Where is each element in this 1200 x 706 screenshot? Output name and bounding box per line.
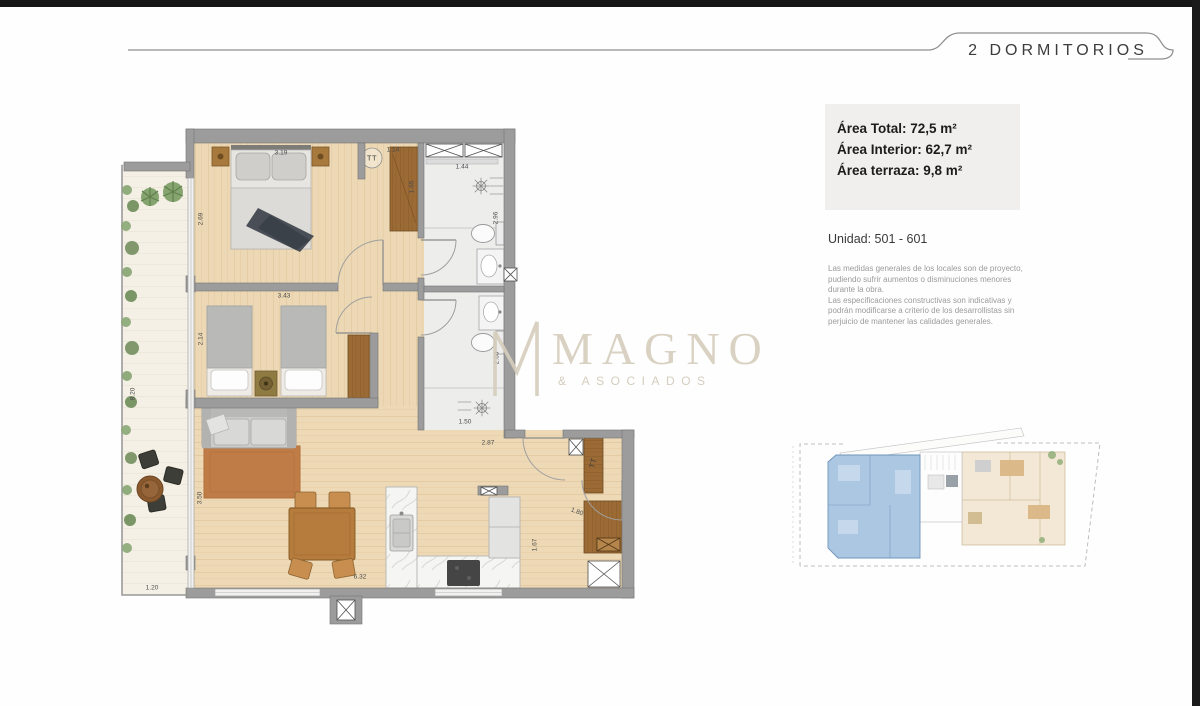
- duct-hatch: [597, 538, 620, 551]
- sink-icon: [390, 512, 413, 552]
- dimension-label: 2.96: [493, 212, 500, 225]
- dimension-label: 3.43: [278, 293, 291, 300]
- single-bed: [207, 306, 252, 396]
- area-interior: Área Interior: 62,7 m²: [837, 139, 1008, 160]
- living-room: [202, 406, 355, 580]
- dimension-label: 6.32: [354, 574, 367, 581]
- dimension-label: 2.69: [198, 213, 205, 226]
- disclaimer: Las medidas generales de los locales son…: [828, 264, 1024, 327]
- toilet-icon: [472, 331, 505, 354]
- page-edge-top: [0, 0, 1200, 7]
- dimension-label: 1.44: [456, 164, 469, 171]
- doors: [336, 240, 622, 520]
- bathroom-1: [424, 159, 504, 284]
- nightstand: [312, 147, 329, 166]
- kitchen: [386, 487, 520, 588]
- terrace-table-set: [137, 450, 183, 513]
- bathroom-2: [424, 296, 504, 416]
- brand-tagline: & ASOCIADOS: [558, 374, 712, 388]
- cooktop-icon: [447, 560, 480, 586]
- plan-label-layer: 3.192.691.141.651.442.963.432.142.601.50…: [0, 0, 1200, 706]
- area-terraza: Área terraza: 9,8 m²: [837, 160, 1008, 181]
- entry-hall: [584, 438, 622, 553]
- kitchen-island: [386, 487, 417, 588]
- dimension-label: 1.14: [387, 147, 400, 154]
- entry-closet: [584, 501, 622, 553]
- brand-name: MAGNO: [552, 322, 771, 375]
- dimension-label: 2.87: [482, 440, 495, 447]
- floor-plan-graphic: [0, 0, 1200, 706]
- vanity-sink-icon: [479, 296, 504, 330]
- disclaimer-paragraph-2: Las especificaciones constructivas son i…: [828, 296, 1024, 328]
- windows: [188, 178, 502, 596]
- laundry-closet: [584, 438, 603, 493]
- dimension-label: 8.20: [130, 388, 137, 401]
- dimension-label: 1.65: [409, 181, 416, 194]
- nightstand: [212, 147, 229, 166]
- unit-label: Unidad: 501 - 601: [828, 232, 927, 246]
- duct-hatch-boxes: [337, 144, 620, 620]
- wardrobe: [390, 147, 419, 231]
- equipment-label: TT: [367, 154, 377, 163]
- rug: [204, 446, 300, 498]
- kitchen-counter: [417, 556, 520, 588]
- potted-plant: [141, 181, 183, 206]
- dining-set: [288, 492, 355, 580]
- equipment-label: TT: [587, 457, 598, 469]
- dimension-label: 1.67: [532, 539, 539, 552]
- disclaimer-paragraph-1: Las medidas generales de los locales son…: [828, 264, 1024, 296]
- brochure-page: 2 DORMITORIOS Área Total: 72,5 m² Área I…: [0, 0, 1200, 706]
- bedroom-2: [207, 306, 373, 398]
- apartment-floor: [194, 143, 622, 588]
- site-key-plan: [793, 428, 1100, 566]
- area-total: Área Total: 72,5 m²: [837, 118, 1008, 139]
- title-tab-rule: [0, 0, 1200, 80]
- terrace: [121, 165, 194, 595]
- dimension-label: 2.60: [494, 352, 501, 365]
- adjacent-unit: [962, 452, 1065, 545]
- single-bed: [281, 306, 326, 396]
- master-bedroom: [212, 145, 329, 252]
- dimension-label: 3.50: [197, 492, 204, 505]
- area-summary-panel: Área Total: 72,5 m² Área Interior: 62,7 …: [825, 104, 1020, 210]
- dimension-label: 2.14: [198, 333, 205, 346]
- dimension-label: 1.50: [459, 419, 472, 426]
- fridge-icon: [489, 497, 520, 558]
- dimension-label: 3.19: [275, 150, 288, 157]
- highlighted-unit: [828, 455, 920, 558]
- climbing-plant: [121, 185, 139, 553]
- toilet-icon: [472, 222, 505, 245]
- double-bed: [231, 145, 314, 252]
- vanity-sink-icon: [477, 249, 504, 284]
- core: [920, 452, 962, 522]
- shower-head-icon: [458, 400, 490, 416]
- shower-head-icon: [473, 178, 503, 194]
- magno-monogram-icon: [492, 316, 542, 400]
- tt-circle: [362, 148, 382, 168]
- dimension-label: 1.20: [146, 585, 159, 592]
- nightstand: [255, 371, 277, 396]
- dressing-area: [362, 147, 419, 231]
- dimension-label: 1.80: [570, 507, 584, 518]
- walls: [124, 129, 634, 624]
- page-title: 2 DORMITORIOS: [952, 42, 1164, 60]
- sofa: [202, 406, 296, 448]
- page-edge-right: [1192, 0, 1200, 706]
- wardrobe: [348, 335, 373, 398]
